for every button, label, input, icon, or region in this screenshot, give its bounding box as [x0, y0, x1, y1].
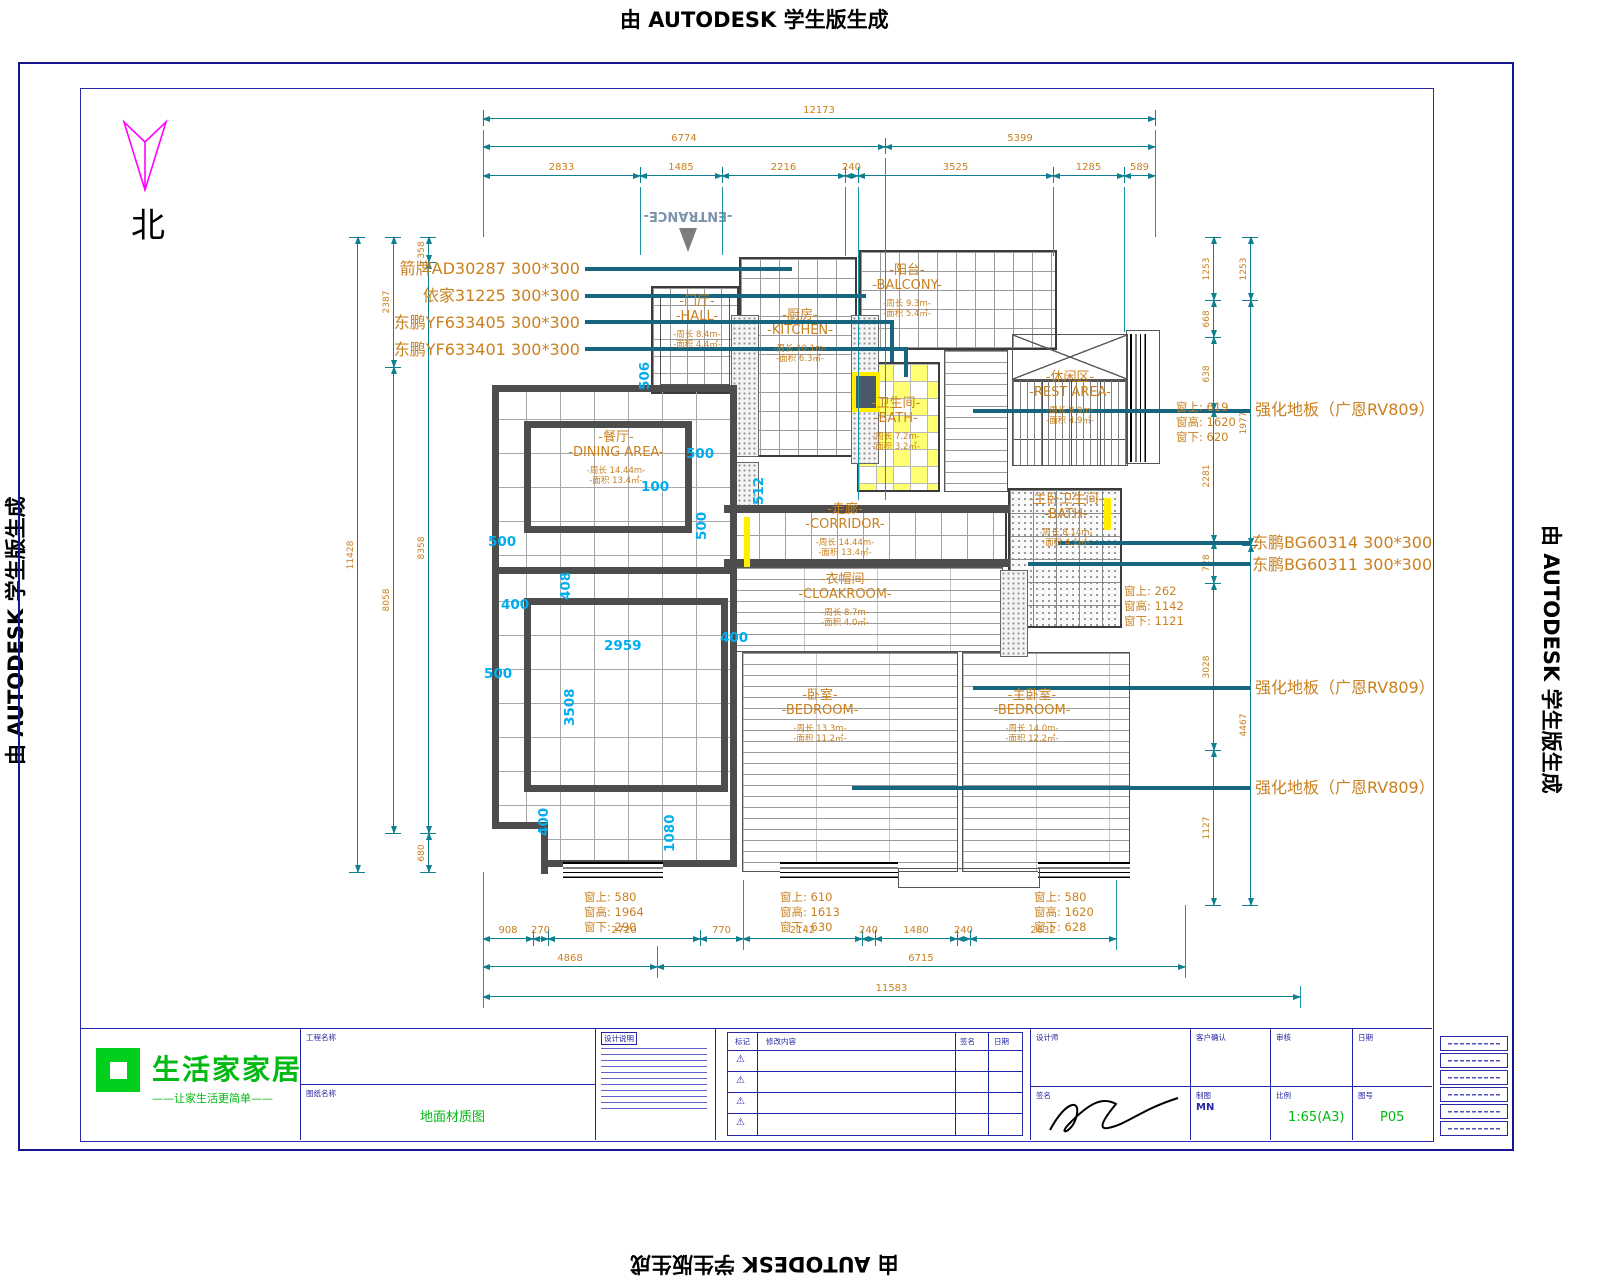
dim-line	[1213, 750, 1214, 905]
tile-spec-label: 依家31225 300*300	[423, 282, 580, 306]
window-spec: 窗上: 580窗高: 1620窗下: 628	[1034, 890, 1094, 935]
dim-tick	[349, 237, 365, 238]
dim-line	[483, 966, 657, 967]
window-spec: 窗上: 580窗高: 1964窗下: 290	[584, 890, 644, 935]
drawing-sheet: 由 AUTODESK 学生版生成 由 AUTODESK 学生版生成 由 AUTO…	[0, 0, 1600, 1280]
signature	[1044, 1092, 1184, 1138]
dim-line	[483, 146, 885, 147]
logo-icon-hole	[110, 1062, 127, 1079]
dim-line	[428, 833, 429, 872]
dim-label: 8358	[417, 536, 427, 559]
dim-label: 1480	[903, 925, 928, 936]
dim-label: 2833	[549, 162, 574, 173]
stamp-box	[1440, 1087, 1508, 1102]
dim-tick	[1242, 300, 1258, 301]
floor-spec-label: 强化地板（广恩RV809）	[1255, 674, 1435, 698]
cyan-dim: 1080	[662, 814, 678, 852]
dim-extension-line	[640, 187, 641, 255]
company-name: 生活家家居	[152, 1048, 302, 1088]
room-label-kitchen: -厨房--KITCHEN--周长 10.1m--面积 6.3㎡-	[767, 308, 833, 364]
cyan-dim: 506	[637, 362, 653, 390]
dim-line	[885, 146, 1155, 147]
rev-col-desc: 修改内容	[766, 1036, 796, 1047]
dim-line	[640, 175, 722, 176]
tile-spec-label: 东鹏YF633405 300*300	[394, 309, 580, 333]
bay-outline	[1126, 330, 1160, 464]
notes-title: 设计说明	[601, 1032, 637, 1045]
dim-line	[722, 175, 845, 176]
company-tagline: ——让家生活更简单——	[152, 1090, 273, 1106]
dim-line	[483, 118, 1155, 119]
leader-line	[852, 786, 1250, 790]
dim-tick	[420, 833, 436, 834]
room-label-bath: -卫生间--BATH--周长 7.2m--面积 3.2㎡-	[872, 396, 920, 452]
project-name-label: 工程名称	[306, 1032, 336, 1043]
stamp-box	[1440, 1104, 1508, 1119]
dim-label: 1127	[1202, 816, 1212, 839]
dim-extension-line	[722, 187, 723, 255]
dim-line	[743, 938, 862, 939]
designer-label: 设计师	[1036, 1032, 1059, 1043]
drawing-name-label: 图纸名称	[306, 1088, 336, 1099]
dim-extension-line	[1053, 187, 1054, 256]
check-label: 审核	[1276, 1032, 1291, 1043]
rev-col-mark: 标记	[735, 1036, 750, 1047]
dim-label: 908	[498, 925, 517, 936]
dim-label: 6715	[908, 953, 933, 964]
room-label-mbedroom: -主卧室--BEDROOM--周长 14.0m--面积 12.2㎡-	[994, 688, 1071, 744]
cyan-dim: 400	[536, 808, 552, 836]
revision-triangle-icon: ⚠	[736, 1075, 745, 1086]
draft-label: 制图	[1196, 1090, 1211, 1101]
rev-col-sign: 签名	[960, 1036, 975, 1047]
rev-col-date: 日期	[994, 1036, 1009, 1047]
notes-body	[601, 1048, 707, 1110]
dim-line	[875, 938, 957, 939]
sheet-no-value: P05	[1380, 1110, 1404, 1125]
dim-extension-line	[483, 872, 484, 1008]
dim-tick	[1124, 167, 1125, 183]
leader-line	[890, 322, 894, 362]
room-label-corridor: -走廊--CORRIDOR--周长 14.44m--面积 13.4㎡-	[805, 502, 884, 558]
cyan-dim: 408	[558, 572, 574, 600]
stamp-box	[1440, 1121, 1508, 1136]
dim-label: 8058	[382, 589, 392, 612]
cyan-dim: 500	[484, 666, 512, 682]
dim-tick	[420, 872, 436, 873]
dim-tick	[385, 237, 401, 238]
dim-extension-line	[483, 130, 484, 237]
cyan-dim: 2959	[604, 638, 642, 654]
revision-triangle-icon: ⚠	[736, 1117, 745, 1128]
laundry-floor-planks	[944, 350, 1008, 492]
dim-tick	[722, 167, 723, 183]
cyan-dim: 500	[488, 534, 516, 550]
window-bedroom	[780, 862, 898, 878]
dim-tick	[1242, 237, 1258, 238]
date-label: 日期	[1358, 1032, 1373, 1043]
dim-line	[1213, 237, 1214, 300]
living-notch	[478, 829, 542, 873]
dim-label: 1485	[668, 162, 693, 173]
floor-spec-label: 东鹏BG60314 300*300	[1252, 529, 1432, 553]
dim-label: 4467	[1239, 714, 1249, 737]
dim-tick	[548, 930, 549, 946]
dim-label: 668	[1202, 310, 1212, 327]
dim-label: 11428	[346, 540, 356, 569]
dim-line	[483, 996, 1300, 997]
dim-tick	[1205, 583, 1221, 584]
cyan-dim: 400	[501, 597, 529, 613]
cyan-dim: 400	[720, 630, 748, 646]
window-spec: 窗上: 610窗高: 1613窗下: 630	[780, 890, 840, 935]
dim-label: 5399	[1007, 133, 1032, 144]
stamp-box	[1440, 1053, 1508, 1068]
threshold-strip	[744, 517, 750, 567]
bottom-step-outline	[898, 868, 1040, 888]
cyan-dim: 3508	[562, 688, 578, 726]
cyan-dim: 500	[686, 446, 714, 462]
dim-tick	[1205, 905, 1221, 906]
dim-line	[1213, 300, 1214, 337]
revision-triangle-icon: ⚠	[736, 1096, 745, 1107]
window-living	[563, 862, 663, 878]
leader-line	[1028, 562, 1250, 566]
dim-tick	[385, 367, 401, 368]
dim-line	[357, 237, 358, 872]
dim-line	[1250, 237, 1251, 300]
dim-extension-line	[657, 946, 658, 978]
floor-spec-label: 强化地板（广恩RV809）	[1255, 774, 1435, 798]
dim-line	[483, 938, 533, 939]
window-spec: 窗上: 619窗高: 1620窗下: 620	[1176, 400, 1236, 445]
drawing-name-value: 地面材质图	[420, 1106, 485, 1125]
corridor-wall-bottom	[724, 559, 1010, 567]
window-master-bedroom	[1038, 862, 1130, 878]
tile-spec-label: 箭牌AD30287 300*300	[400, 255, 580, 279]
room-label-balcony: -阳台--BALCONY--周长 9.3m--面积 5.4㎡-	[872, 263, 941, 319]
dim-label: 638	[1202, 365, 1212, 382]
dim-tick	[1205, 237, 1221, 238]
tile-spec-label: 东鹏YF633401 300*300	[394, 336, 580, 360]
dim-tick	[1205, 337, 1221, 338]
dim-extension-line	[1185, 905, 1186, 978]
room-label-dining: -餐厅--DINING AREA--周长 14.44m--面积 13.4㎡-	[568, 430, 663, 486]
revision-table	[727, 1032, 1023, 1136]
living-inner-outline	[524, 598, 728, 792]
dim-tick	[885, 138, 886, 154]
dim-tick	[483, 110, 484, 126]
dim-tick	[1053, 167, 1054, 183]
client-confirm-label: 客户确认	[1196, 1032, 1226, 1043]
scale-value: 1:65(A3)	[1288, 1110, 1345, 1125]
dim-label: 1253	[1202, 257, 1212, 280]
dim-label: 3525	[943, 162, 968, 173]
dim-line	[483, 175, 640, 176]
scale-label: 比例	[1276, 1090, 1291, 1101]
dim-tick	[640, 167, 641, 183]
dim-extension-line	[1300, 986, 1301, 1008]
dim-extension-line	[1124, 187, 1125, 332]
bedroom-floor-planks	[742, 652, 958, 872]
room-label-bedroom: -卧室--BEDROOM--周长 13.3m--面积 11.2㎡-	[782, 688, 859, 744]
room-label-rest: -休闲区--REST AREA--周长 8.9m--面积 4.9㎡-	[1029, 370, 1111, 426]
dim-label: 680	[417, 844, 427, 861]
dim-label: 1285	[1076, 162, 1101, 173]
dim-line	[1124, 175, 1155, 176]
dim-label: 770	[712, 925, 731, 936]
dim-label: 2387	[382, 291, 392, 314]
dim-label: 4868	[557, 953, 582, 964]
master-bath-door	[1104, 498, 1111, 530]
leader-line	[585, 320, 894, 324]
floor-spec-label: 强化地板（广恩RV809）	[1255, 396, 1435, 420]
dim-line	[970, 938, 1116, 939]
stamp-box	[1440, 1070, 1508, 1085]
wall-pier-hatch	[1000, 570, 1028, 657]
dim-label: 1977	[1239, 411, 1249, 434]
cyan-dim: 512	[751, 477, 767, 505]
dim-line	[700, 938, 743, 939]
dim-line	[858, 175, 1053, 176]
leader-line	[904, 349, 908, 377]
leader-line	[585, 347, 908, 351]
dim-extension-line	[743, 880, 744, 950]
dim-tick	[349, 872, 365, 873]
window-spec: 窗上: 262窗高: 1142窗下: 1121	[1124, 584, 1184, 629]
room-label-mbath: -主卧卫生间--BATH--周长 8.14m--面积 4.1㎡-	[1029, 492, 1103, 548]
dim-label: 6774	[671, 133, 696, 144]
dim-extension-line	[1155, 130, 1156, 237]
floor-spec-label: 东鹏BG60311 300*300	[1252, 551, 1432, 575]
dim-tick	[1205, 750, 1221, 751]
dim-extension-line	[1116, 880, 1117, 950]
dim-tick	[858, 167, 859, 183]
dim-tick	[1242, 905, 1258, 906]
master-bedroom-floor-planks	[962, 652, 1130, 872]
dim-label: 11583	[876, 983, 908, 994]
dim-line	[533, 938, 548, 939]
dim-line	[1213, 583, 1214, 750]
dim-label: 12173	[803, 105, 835, 116]
dim-tick	[1205, 300, 1221, 301]
leader-line	[585, 294, 866, 298]
room-label-hall: -门厅--HALL--周长 8.4m--面积 4.4㎡-	[673, 294, 721, 350]
room-label-cloak: -衣帽间--CLOAKROOM--周长 8.7m--面积 4.0㎡-	[798, 572, 891, 628]
dim-tick	[420, 237, 436, 238]
dim-line	[657, 966, 1185, 967]
cyan-dim: 100	[641, 479, 669, 495]
dim-tick	[700, 930, 701, 946]
sheet-no-label: 图号	[1358, 1090, 1373, 1101]
dim-label: 2281	[1202, 465, 1212, 488]
dim-line	[1053, 175, 1124, 176]
cyan-dim: 500	[694, 512, 710, 540]
dim-tick	[875, 930, 876, 946]
dim-label: 3028	[1202, 655, 1212, 678]
draft-value: MN	[1196, 1102, 1214, 1113]
dim-line	[548, 938, 700, 939]
dim-extension-line	[858, 187, 859, 500]
dim-label: 1253	[1239, 257, 1249, 280]
dim-line	[1250, 545, 1251, 905]
dim-tick	[1155, 110, 1156, 126]
dim-tick	[970, 930, 971, 946]
dim-line	[393, 367, 394, 833]
dim-label: 2216	[771, 162, 796, 173]
dim-label: 589	[1130, 162, 1149, 173]
stamp-box	[1440, 1036, 1508, 1051]
dim-extension-line	[845, 187, 846, 256]
dim-tick	[385, 833, 401, 834]
leader-line	[585, 267, 792, 271]
dim-line	[1250, 300, 1251, 545]
revision-triangle-icon: ⚠	[736, 1054, 745, 1065]
